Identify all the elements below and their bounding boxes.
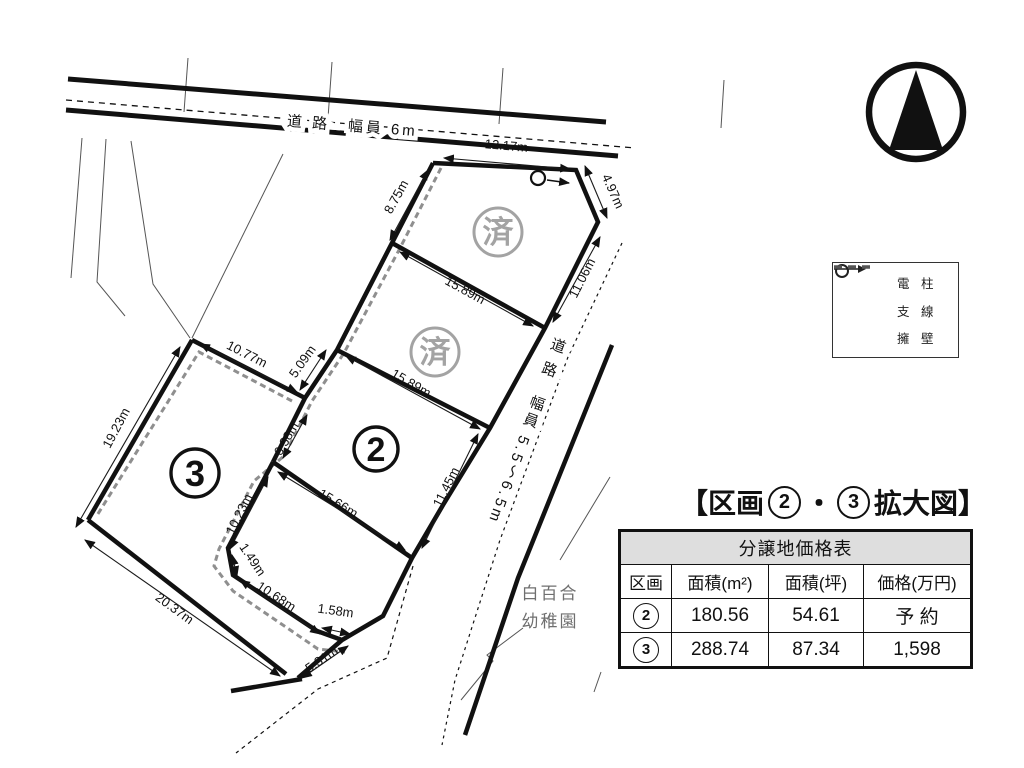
sold-stamp-upper: 済 [474, 208, 522, 256]
sold-stamp-lower: 済 [411, 328, 459, 376]
landmark-line2: 幼稚園 [512, 608, 588, 636]
dim-label: 6.38m [271, 419, 302, 458]
dim-label: 19.23m [99, 405, 133, 450]
title-prefix: 【区画 [680, 482, 764, 522]
boundary-tail [231, 679, 302, 691]
sold-stamp-text: 済 [483, 215, 515, 250]
legend-label-guy-wire: 支 線 [897, 301, 937, 320]
col-header-lot: 区画 [620, 565, 672, 599]
cell-lot-2: 2 [620, 599, 672, 633]
legend-item-retaining-wall: 擁 壁 [833, 328, 958, 347]
cell-area-tsubo-2: 54.61 [769, 599, 864, 633]
plot3-number: 3 [185, 453, 205, 494]
dim-label: 1.49m [236, 540, 269, 578]
price-table-header-row: 区画 面積(m²) 面積(坪) 価格(万円) [620, 565, 972, 599]
title-suffix: 拡大図】 [874, 482, 986, 522]
dim-label: 20.37m [153, 590, 197, 628]
table-row: 2 180.56 54.61 予 約 [620, 599, 972, 633]
dim-label: 15.66m [316, 486, 361, 521]
dim-label: 5.09m [286, 342, 319, 380]
price-table: 分譲地価格表 区画 面積(m²) 面積(坪) 価格(万円) 2 180.56 5… [618, 529, 973, 669]
dim-label: 1.58m [317, 601, 355, 621]
page-title: 【区画 2 ・ 3 拡大図】 [668, 482, 998, 522]
cell-price-3: 1,598 [864, 633, 972, 668]
col-header-price: 価格(万円) [864, 565, 972, 599]
price-table-caption: 分譲地価格表 [620, 531, 972, 565]
dim-label: 10.23m [222, 491, 255, 536]
dim-label: 5.31m [302, 643, 340, 676]
title-plot3-circled-number: 3 [837, 486, 870, 519]
map-legend: 電 柱 支 線 擁 壁 [832, 262, 959, 358]
cell-area-m2-3: 288.74 [672, 633, 769, 668]
price-table-caption-row: 分譲地価格表 [620, 531, 972, 565]
right-road [236, 243, 622, 753]
col-header-area-m2: 面積(m²) [672, 565, 769, 599]
dim-label: 10.77m [224, 337, 269, 370]
plot3-west-edge [88, 340, 192, 520]
title-separator: ・ [805, 482, 833, 522]
cell-area-m2-2: 180.56 [672, 599, 769, 633]
plot2-number: 2 [367, 431, 386, 469]
site-plan-page: 12.17m 4.97m 11.06m 8.75m 15.89m 15.89m … [0, 0, 1024, 768]
west-boundary-chain [273, 163, 433, 462]
legend-label-retaining-wall: 擁 壁 [897, 328, 937, 347]
retaining-wall-dashed [96, 168, 441, 652]
table-row: 3 288.74 87.34 1,598 [620, 633, 972, 668]
landmark-kindergarten: 白百合 幼稚園 [512, 580, 588, 636]
north-arrow-icon [869, 65, 963, 159]
dim-label: 11.45m [430, 465, 463, 510]
col-header-area-tsubo: 面積(坪) [769, 565, 864, 599]
legend-item-guy-wire: 支 線 [833, 301, 958, 320]
utility-pole-icon [531, 171, 569, 185]
title-plot2-circled-number: 2 [768, 486, 801, 519]
dim-label: 12.17m [484, 136, 529, 155]
dim-label: 15.89m [443, 273, 488, 307]
plot2-badge: 2 [354, 427, 398, 471]
dim-label: 4.97m [599, 172, 627, 211]
plot3-badge: 3 [171, 449, 219, 497]
cell-lot-3: 3 [620, 633, 672, 668]
guy-wire-icon [547, 180, 569, 183]
legend-label-pole: 電 柱 [897, 273, 937, 292]
legend-item-pole: 電 柱 [833, 273, 958, 292]
sold-stamp-text: 済 [420, 335, 452, 370]
cell-area-tsubo-3: 87.34 [769, 633, 864, 668]
lot3-circled-number: 3 [633, 637, 659, 663]
plot3-southwest-edge [88, 520, 286, 674]
cell-price-2: 予 約 [864, 599, 972, 633]
landmark-line1: 白百合 [512, 580, 588, 608]
lot2-circled-number: 2 [633, 603, 659, 629]
